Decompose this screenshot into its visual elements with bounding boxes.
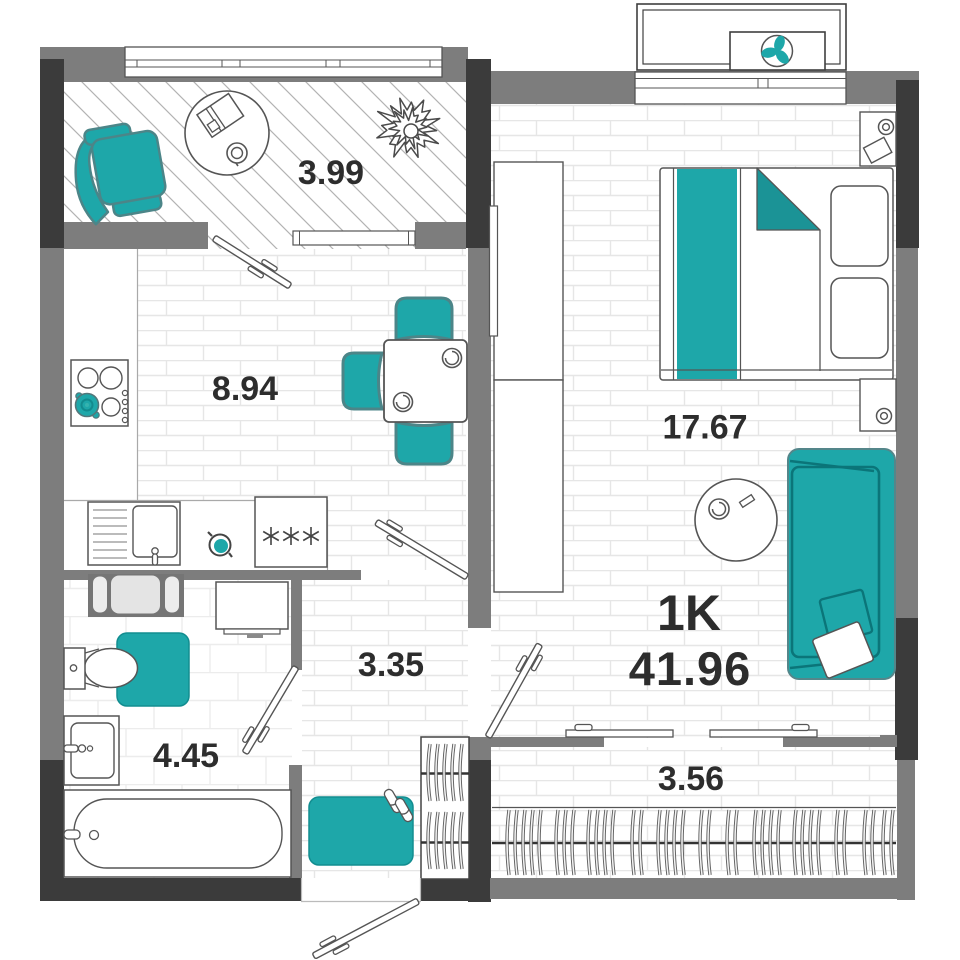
- svg-text:4.45: 4.45: [153, 737, 219, 775]
- svg-text:8.94: 8.94: [212, 370, 278, 408]
- svg-text:41.96: 41.96: [629, 642, 752, 695]
- svg-text:1K: 1K: [657, 585, 721, 641]
- svg-text:3.56: 3.56: [658, 760, 724, 798]
- svg-text:3.35: 3.35: [358, 646, 424, 684]
- svg-text:17.67: 17.67: [662, 409, 747, 447]
- svg-text:3.99: 3.99: [298, 154, 364, 192]
